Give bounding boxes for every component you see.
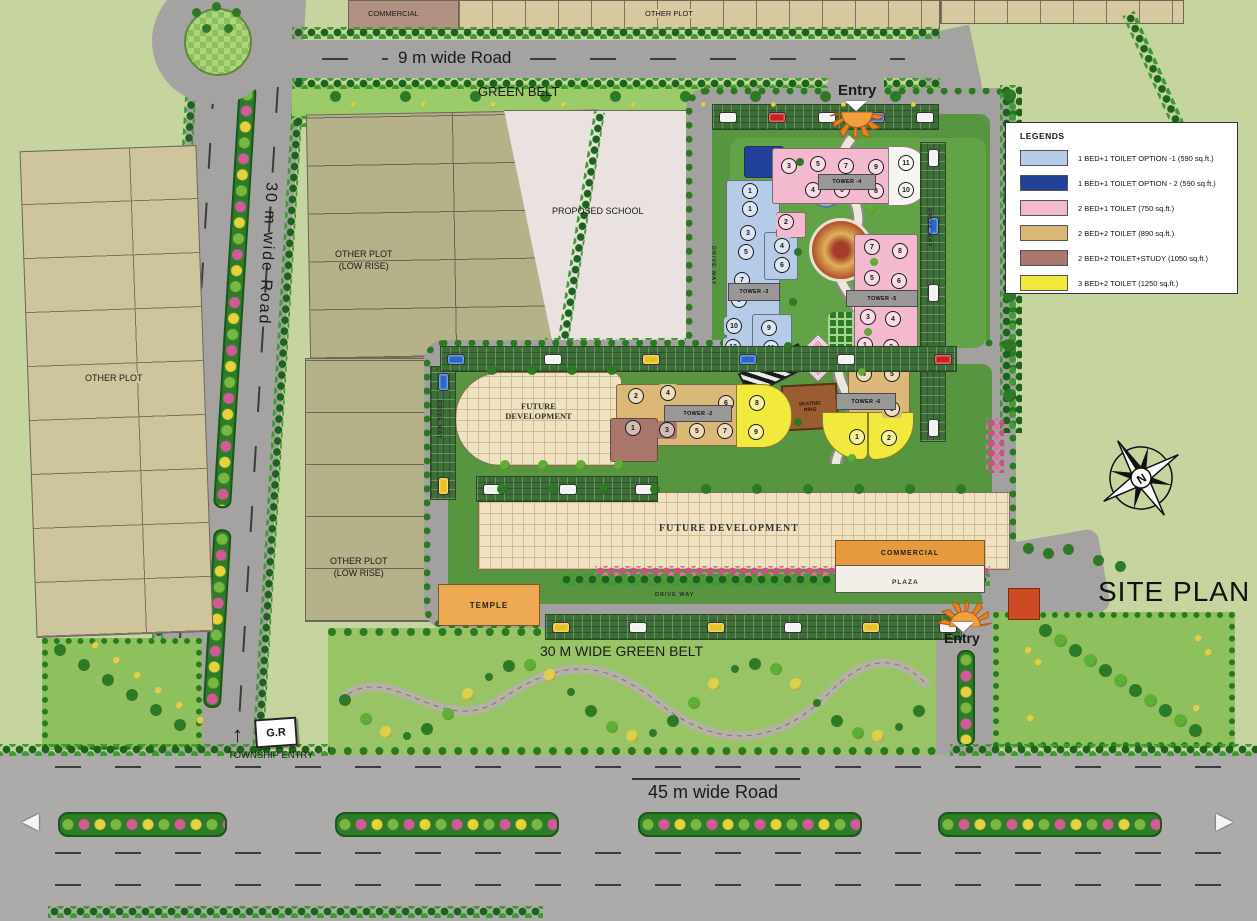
car: [784, 622, 802, 633]
unit-number: 7: [838, 158, 854, 174]
tree-icon: [134, 672, 141, 679]
unit-number: 3: [659, 422, 675, 438]
car: [928, 284, 939, 302]
unit-number: 5: [738, 244, 754, 260]
tree-icon: [330, 91, 341, 102]
tree-icon: [794, 418, 802, 426]
legend-entry: 1 BED+1 TOILET OPTION -1 (590 sq.ft.): [1020, 150, 1237, 166]
tree-icon: [1093, 555, 1104, 566]
tower-unit: 7: [836, 157, 856, 175]
tree-icon: [606, 721, 618, 733]
tree-icon: [442, 708, 454, 720]
tree-icon: [1205, 649, 1212, 656]
tower-unit: 8: [747, 394, 767, 412]
tree-icon: [360, 713, 372, 725]
tree-icon: [614, 460, 624, 470]
tree-icon: [794, 248, 802, 256]
tree-icon: [403, 732, 411, 740]
car: [438, 477, 449, 495]
tree-icon: [585, 705, 597, 717]
tree-icon: [232, 8, 241, 17]
tree-icon: [485, 673, 493, 681]
tree-icon: [1099, 664, 1112, 677]
tree-icon: [176, 702, 183, 709]
tower-label: TOWER -5: [846, 290, 918, 307]
tree-icon: [113, 657, 120, 664]
road-9m-label: 9 m wide Road: [398, 48, 511, 68]
tree-icon: [956, 484, 966, 494]
tree-icon: [789, 298, 797, 306]
tree-icon: [852, 727, 864, 739]
tower-label: TOWER -2: [664, 405, 732, 422]
parking-strip: [440, 346, 957, 372]
car: [837, 354, 855, 365]
tree-icon: [1003, 389, 1016, 402]
green-belt-label: GREEN BELT: [478, 84, 559, 99]
entry-label-top: Entry: [838, 82, 876, 99]
tree-icon: [770, 663, 782, 675]
tree-icon: [607, 365, 617, 375]
tree-icon: [1063, 544, 1074, 555]
tower-unit: 2: [879, 429, 899, 447]
tower-unit: 1: [847, 428, 867, 446]
tower-label: TOWER -4: [818, 174, 876, 190]
plaza-label: PLAZA: [892, 579, 919, 586]
legend-entry: 2 BED+2 TOILET+STUDY (1050 sq.ft.): [1020, 250, 1237, 266]
tower-unit: 3: [858, 308, 878, 326]
unit-number: 6: [891, 273, 907, 289]
drive-way-label: DRIVE WAY: [710, 246, 716, 285]
unit-number: 11: [898, 155, 914, 171]
tree-icon: [197, 717, 204, 724]
car: [768, 112, 786, 123]
tower-unit: 6: [772, 256, 792, 274]
tower-unit: 1: [740, 182, 760, 200]
unit-number: 3: [740, 225, 756, 241]
car: [447, 354, 465, 365]
unit-number: 10: [726, 318, 742, 334]
future-dev-label: FUTURE DEVELOPMENT: [659, 523, 799, 534]
tree-icon: [339, 694, 351, 706]
tower-unit: 2: [626, 387, 646, 405]
tree-icon: [1023, 543, 1034, 554]
unit-number: 1: [742, 183, 758, 199]
tower-unit: 10: [896, 181, 916, 199]
legend-swatch: [1020, 225, 1068, 241]
tree-icon: [680, 91, 691, 102]
other-plot-left-label: OTHER PLOT: [83, 373, 145, 383]
tree-icon: [1129, 684, 1142, 697]
tree-icon: [848, 454, 856, 462]
tree-icon: [864, 328, 872, 336]
tree-icon: [1189, 724, 1202, 737]
parking-strip: [920, 142, 946, 442]
unit-number: 9: [868, 159, 884, 175]
tree-icon: [626, 730, 638, 742]
tree-icon: [872, 730, 884, 742]
tree-icon: [631, 102, 636, 107]
entry-gate-top-icon: [828, 112, 886, 139]
unit-number: 4: [660, 385, 676, 401]
tower-unit: 11: [896, 154, 916, 172]
tree-icon: [870, 258, 878, 266]
tree-icon: [667, 715, 679, 727]
unit-number: 6: [774, 257, 790, 273]
legend-title: LEGENDS: [1020, 131, 1237, 141]
lane-marking: [322, 58, 388, 60]
unit-number: 7: [717, 423, 733, 439]
site-plan-canvas: ◀ ▶ FUTURE DEVELOPMEN: [0, 0, 1257, 921]
legend-label: 1 BED+1 TOILET OPTION - 2 (590 sq.ft.): [1078, 179, 1216, 188]
legend-label: 2 BED+2 TOILET (890 sq.ft.): [1078, 229, 1174, 238]
tower-unit: 3: [738, 224, 758, 242]
entry-arrow-top: [845, 101, 867, 111]
tree-icon: [380, 726, 392, 738]
tree-icon: [701, 102, 706, 107]
car: [928, 149, 939, 167]
drive-way-label: DRIVE WAY: [436, 400, 442, 439]
tree-icon: [750, 91, 761, 102]
tree-icon: [78, 659, 90, 671]
parking-strip: [545, 614, 962, 640]
tree-icon: [708, 678, 720, 690]
unit-number: 1: [849, 429, 865, 445]
tower-unit: 4: [772, 237, 792, 255]
car: [552, 622, 570, 633]
tree-icon: [561, 102, 566, 107]
temple-label: TEMPLE: [470, 601, 508, 610]
tree-icon: [1159, 704, 1172, 717]
tree-icon: [576, 460, 586, 470]
legend-label: 3 BED+2 TOILET (1250 sq.ft.): [1078, 279, 1178, 288]
unit-number: 7: [864, 239, 880, 255]
tree-icon: [462, 688, 474, 700]
legend-entry: 2 BED+2 TOILET (890 sq.ft.): [1020, 225, 1237, 241]
car: [719, 112, 737, 123]
parking-strip: [712, 104, 939, 130]
tree-icon: [527, 365, 537, 375]
tree-icon: [400, 91, 411, 102]
tower-unit: 5: [687, 422, 707, 440]
car: [707, 622, 725, 633]
tree-icon: [548, 484, 558, 494]
tree-icon: [610, 91, 621, 102]
legend-label: 2 BED+1 TOILET (750 sq.ft.): [1078, 204, 1174, 213]
unit-number: 8: [749, 395, 765, 411]
unit-number: 9: [748, 424, 764, 440]
unit-number: 2: [881, 430, 897, 446]
other-plot-top-label: OTHER PLOT: [642, 9, 696, 18]
tree-icon: [192, 8, 201, 17]
gate-building: [1008, 588, 1040, 620]
tree-icon: [1054, 634, 1067, 647]
tree-icon: [868, 204, 876, 212]
tree-icon: [831, 715, 843, 727]
tree-icon: [1193, 705, 1200, 712]
future-dev-building: FUTURE DEVELOPMENT: [455, 372, 622, 466]
unit-number: 3: [781, 158, 797, 174]
tower-unit: 5: [808, 155, 828, 173]
tree-icon: [212, 2, 221, 11]
tree-icon: [599, 484, 609, 494]
tree-icon: [421, 723, 433, 735]
tower-unit: 9: [746, 423, 766, 441]
legend-entry: 1 BED+1 TOILET OPTION - 2 (590 sq.ft.): [1020, 175, 1237, 191]
tree-icon: [155, 687, 162, 694]
drive-way-label: DRIVE WAY: [655, 592, 694, 598]
car: [739, 354, 757, 365]
tree-icon: [890, 91, 901, 102]
legend-swatch: [1020, 150, 1068, 166]
tree-icon: [126, 689, 138, 701]
low-rise-a-label: OTHER PLOT(LOW RISE): [335, 248, 393, 272]
unit-number: 5: [810, 156, 826, 172]
tree-icon: [1069, 644, 1082, 657]
car: [559, 484, 577, 495]
tree-icon: [1027, 715, 1034, 722]
tree-icon: [544, 669, 556, 681]
tree-icon: [911, 102, 916, 107]
car: [629, 622, 647, 633]
tree-icon: [54, 644, 66, 656]
tree-icon: [649, 729, 657, 737]
tower-unit: 2: [776, 213, 796, 231]
unit-number: 4: [774, 238, 790, 254]
tree-icon: [503, 660, 515, 672]
legend-label: 1 BED+1 TOILET OPTION -1 (590 sq.ft.): [1078, 154, 1214, 163]
tree-icon: [1195, 635, 1202, 642]
tree-icon: [895, 723, 903, 731]
commercial-label: COMMERCIAL: [881, 550, 939, 557]
commercial-top-label: COMMERCIAL: [368, 9, 419, 18]
tree-icon: [790, 678, 802, 690]
unit-number: 1: [625, 420, 641, 436]
township-entry-label: TOWNSHIP ENTRY: [228, 750, 314, 761]
unit-number: 2: [778, 214, 794, 230]
low-rise-b-label: OTHER PLOT(LOW RISE): [330, 555, 388, 579]
car: [916, 112, 934, 123]
tree-icon: [524, 659, 536, 671]
tower-unit: 9: [759, 319, 779, 337]
tree-icon: [1025, 647, 1032, 654]
tree-icon: [1114, 674, 1127, 687]
dimension-line: [632, 778, 800, 780]
tree-icon: [784, 342, 792, 350]
tree-icon: [224, 24, 233, 33]
tree-icon: [102, 674, 114, 686]
tower-unit: 6: [889, 272, 909, 290]
tree-icon: [796, 158, 804, 166]
tree-icon: [500, 460, 510, 470]
tree-icon: [688, 697, 700, 709]
tower-unit: 1: [740, 200, 760, 218]
tower-unit: 10: [724, 317, 744, 335]
entry-label-bottom: Entry: [944, 630, 980, 646]
car: [642, 354, 660, 365]
tree-icon: [421, 102, 426, 107]
tree-icon: [1144, 694, 1157, 707]
tree-icon: [567, 688, 575, 696]
drive-way-label: DRIVE WAY: [926, 208, 932, 247]
tree-icon: [491, 102, 496, 107]
tower-unit: 8: [890, 242, 910, 260]
gr-sign: G.R: [254, 717, 298, 749]
legend-entry: 3 BED+2 TOILET (1250 sq.ft.): [1020, 275, 1237, 291]
skating-ring-label-2: RING: [804, 407, 817, 414]
plaza-strip: PLAZA: [835, 565, 985, 593]
road-45m-label: 45 m wide Road: [648, 782, 778, 803]
tree-icon: [1084, 654, 1097, 667]
commercial-strip: COMMERCIAL: [835, 540, 985, 567]
tower-unit: 4: [658, 384, 678, 402]
future-dev-label-2: DEVELOPMENT: [456, 411, 621, 421]
tree-icon: [1035, 659, 1042, 666]
car: [928, 419, 939, 437]
tree-icon: [202, 24, 211, 33]
unit-number: 5: [689, 423, 705, 439]
car: [934, 354, 952, 365]
tree-icon: [1039, 624, 1052, 637]
legend-label: 2 BED+2 TOILET+STUDY (1050 sq.ft.): [1078, 254, 1208, 263]
tree-icon: [174, 719, 186, 731]
car: [862, 622, 880, 633]
school-label: PROPOSED SCHOOL: [552, 206, 644, 216]
tree-icon: [351, 102, 356, 107]
tree-icon: [1115, 561, 1126, 572]
tree-icon: [150, 704, 162, 716]
green-belt-30m-label: 30 M WIDE GREEN BELT: [540, 643, 703, 659]
tower-unit: 7: [715, 422, 735, 440]
car: [544, 354, 562, 365]
legend-swatch: [1020, 275, 1068, 291]
unit-number: 10: [898, 182, 914, 198]
tree-icon: [771, 102, 776, 107]
tree-icon: [749, 658, 761, 670]
tree-icon: [905, 484, 915, 494]
legend-swatch: [1020, 200, 1068, 216]
legend-rows: 1 BED+1 TOILET OPTION -1 (590 sq.ft.)1 B…: [1006, 150, 1237, 291]
page-title: SITE PLAN: [1098, 576, 1250, 608]
tower-unit: 1: [623, 419, 643, 437]
legend-box: LEGENDS 1 BED+1 TOILET OPTION -1 (590 sq…: [1005, 122, 1238, 294]
tower-unit: 4: [883, 310, 903, 328]
tree-icon: [487, 365, 497, 375]
parking-strip: [430, 366, 456, 500]
tower-unit: 3: [657, 421, 677, 439]
tree-icon: [567, 365, 577, 375]
tree-icon: [854, 484, 864, 494]
tree-icon: [1174, 714, 1187, 727]
tower-unit: 7: [862, 238, 882, 256]
legend-entry: 2 BED+1 TOILET (750 sq.ft.): [1020, 200, 1237, 216]
unit-number: 5: [864, 270, 880, 286]
tree-icon: [1003, 339, 1016, 352]
legend-swatch: [1020, 250, 1068, 266]
unit-number: 9: [761, 320, 777, 336]
tree-icon: [813, 699, 821, 707]
tree-icon: [1003, 89, 1016, 102]
car: [438, 373, 449, 391]
tree-icon: [650, 484, 660, 494]
tree-icon: [731, 665, 739, 673]
unit-number: 1: [742, 201, 758, 217]
tree-icon: [701, 484, 711, 494]
tower-unit: 5: [736, 243, 756, 261]
tree-icon: [538, 460, 548, 470]
tree-icon: [92, 642, 99, 649]
tree-icon: [803, 484, 813, 494]
tower-label: TOWER -6: [836, 393, 896, 410]
tree-icon: [752, 484, 762, 494]
legend-swatch: [1020, 175, 1068, 191]
tree-icon: [820, 91, 831, 102]
unit-number: 4: [885, 311, 901, 327]
tower-label: TOWER -3: [728, 283, 780, 301]
lane-marking: [530, 58, 905, 60]
tree-icon: [1043, 548, 1054, 559]
unit-number: 8: [892, 243, 908, 259]
tower-unit: 5: [862, 269, 882, 287]
gr-arrow: ↑: [232, 722, 243, 748]
temple: TEMPLE: [438, 584, 540, 626]
future-dev-label-1: FUTURE: [456, 401, 621, 411]
tree-icon: [497, 484, 507, 494]
tree-icon: [913, 705, 925, 717]
unit-number: 2: [628, 388, 644, 404]
unit-number: 3: [860, 309, 876, 325]
tree-icon: [858, 368, 866, 376]
